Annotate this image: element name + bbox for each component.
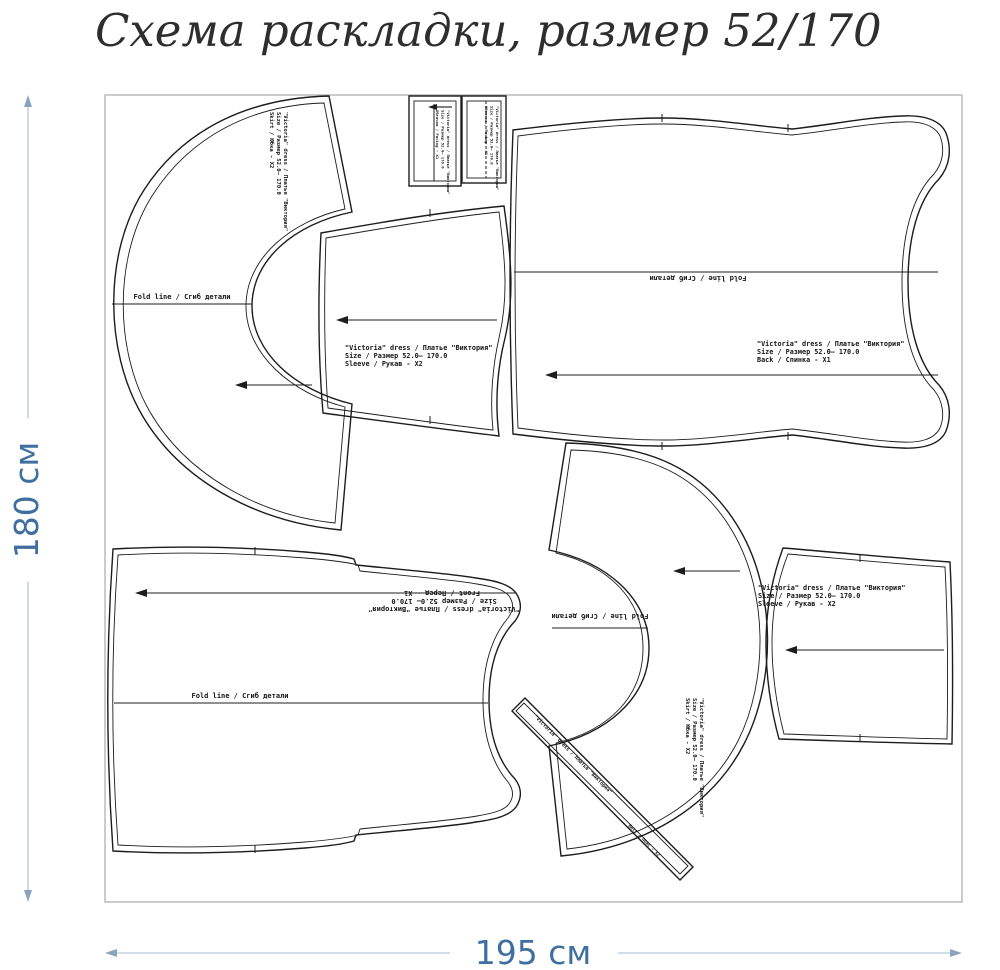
piece-name-line: Skirt / Юбка - X2 bbox=[684, 698, 691, 754]
piece-header-line: "Victoria" dress / Платье "Виктория" bbox=[368, 605, 520, 613]
piece-header-line: "Victoria" dress / Платье "Виктория" bbox=[446, 110, 451, 194]
piece-size-line: Size / Размер 52.0— 170.0 bbox=[275, 112, 281, 195]
piece-header-line: "Victoria" dress / Платье "Виктория" bbox=[282, 112, 288, 231]
piece-name-line: Sleeve / Рукав - X2 bbox=[758, 600, 836, 608]
fold-line-label: Fold line / Сгиб детали bbox=[650, 274, 747, 282]
piece-name-line: Sleeve / Рукав - X2 bbox=[345, 360, 423, 368]
dimension-height: 180 см bbox=[7, 95, 46, 902]
piece-name-line: Skirt / Юбка - X2 bbox=[268, 112, 275, 168]
piece-header-line: "Victoria" dress / Платье "Виктория" bbox=[698, 698, 704, 817]
arrow-up-icon bbox=[24, 95, 32, 107]
dimension-width: 195 см bbox=[105, 933, 962, 970]
fold-line-label: Fold line / Сгиб детали bbox=[192, 692, 289, 700]
piece-size-line: Size / Размер 52.0— 170.0 bbox=[490, 106, 495, 165]
arrow-down-icon bbox=[24, 890, 32, 902]
piece-size-line: Size / Размер 52.0— 170.0 bbox=[441, 110, 446, 169]
piece-size-line: Size / Размер 52.0— 170.0 bbox=[691, 698, 697, 781]
fabric-area bbox=[105, 95, 962, 902]
page-title: Схема раскладки, размер 52/170 bbox=[95, 4, 882, 57]
piece-size-line: Size / Размер 52.0— 170.0 bbox=[758, 592, 860, 600]
piece-name-line: Front / Перед - X1 bbox=[404, 589, 480, 597]
piece-header-line: "Victoria" dress / Платье "Виктория" bbox=[758, 584, 905, 592]
pattern-layout-page: Схема раскладки, размер 52/170 180 см 19… bbox=[0, 0, 1000, 970]
arrow-right-icon bbox=[950, 949, 962, 957]
piece-name-line: Обтачка / Facing - X1 bbox=[484, 106, 489, 156]
piece-name-line: Back / Спинка - X1 bbox=[757, 356, 831, 364]
dimension-height-label: 180 см bbox=[7, 442, 46, 559]
fold-line-label: Fold line / Сгиб детали bbox=[134, 293, 231, 301]
piece-header-line: "Victoria" dress / Платье "Виктория" bbox=[345, 344, 492, 352]
piece-name-line: Обтачка / Facing - X1 bbox=[435, 110, 440, 160]
piece-header-line: "Victoria" dress / Платье "Виктория" bbox=[495, 106, 500, 190]
fold-line-label: Fold line / Сгиб детали bbox=[552, 612, 649, 620]
piece-header-line: "Victoria" dress / Платье "Виктория" bbox=[757, 340, 904, 348]
dimension-width-label: 195 см bbox=[475, 933, 592, 970]
piece-size-line: Size / Размер 52.0— 170.0 bbox=[345, 352, 447, 360]
piece-size-line: Size / Размер 52.0— 170.0 bbox=[391, 597, 496, 605]
layout-canvas: Схема раскладки, размер 52/170 180 см 19… bbox=[0, 0, 1000, 970]
piece-size-line: Size / Размер 52.0— 170.0 bbox=[757, 348, 859, 356]
arrow-left-icon bbox=[105, 949, 117, 957]
